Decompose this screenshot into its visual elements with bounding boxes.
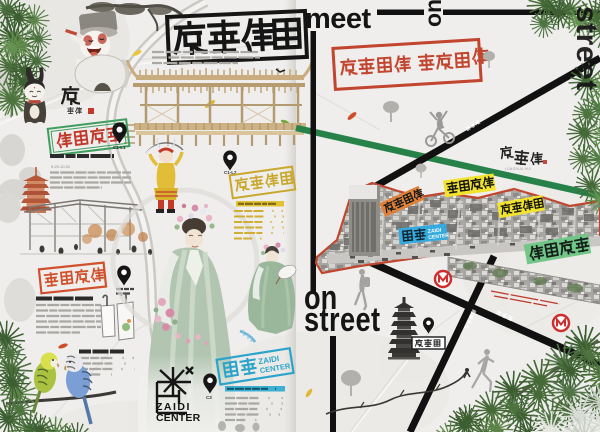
svg-text:CENTER: CENTER — [156, 412, 201, 424]
svg-text:street: street — [570, 6, 600, 91]
svg-text:C1-L1: C1-L1 — [113, 145, 126, 150]
svg-text:LONGHUA HUI: LONGHUA HUI — [505, 167, 531, 171]
svg-text:meet: meet — [305, 3, 372, 35]
svg-text:9.29-10.31: 9.29-10.31 — [51, 164, 71, 169]
svg-text:street: street — [304, 300, 380, 339]
svg-text:C3: C3 — [206, 395, 212, 400]
svg-text:on: on — [420, 0, 446, 27]
